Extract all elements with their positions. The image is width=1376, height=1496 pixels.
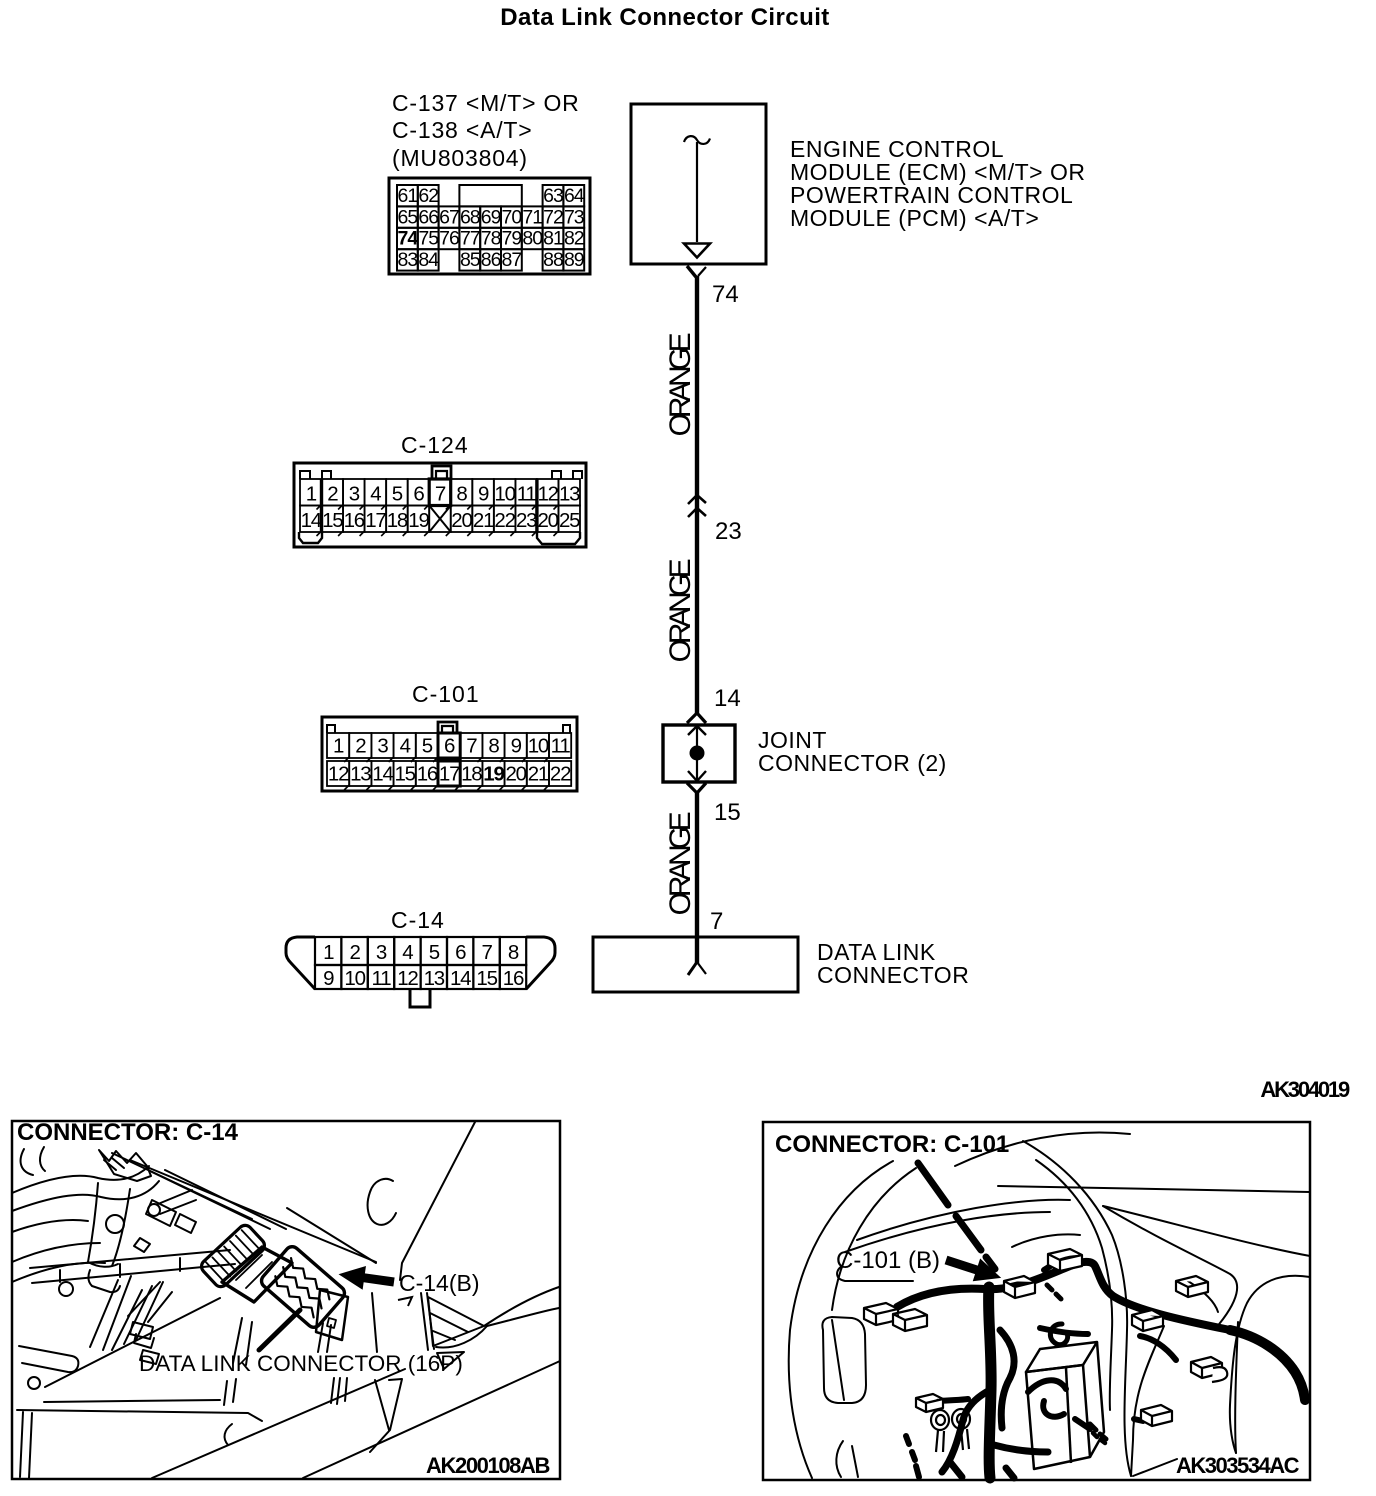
svg-text:Data Link Connector Circuit: Data Link Connector Circuit	[500, 4, 830, 31]
svg-text:ORANGE: ORANGE	[664, 559, 697, 662]
svg-text:4: 4	[370, 483, 381, 506]
svg-text:15: 15	[322, 509, 343, 532]
svg-text:78: 78	[481, 228, 501, 250]
svg-text:10: 10	[528, 735, 549, 758]
svg-text:85: 85	[460, 249, 481, 271]
svg-text:3: 3	[349, 483, 360, 506]
svg-text:AK200108AB: AK200108AB	[426, 1453, 549, 1478]
svg-text:69: 69	[481, 206, 501, 228]
svg-text:7: 7	[481, 941, 492, 964]
svg-text:C-124: C-124	[401, 432, 469, 458]
svg-text:86: 86	[481, 249, 501, 271]
svg-text:5: 5	[422, 735, 433, 758]
svg-text:3: 3	[376, 941, 387, 964]
svg-text:67: 67	[439, 206, 459, 228]
svg-text:63: 63	[543, 185, 563, 207]
svg-text:83: 83	[398, 249, 418, 271]
svg-text:11: 11	[372, 967, 392, 990]
svg-text:13: 13	[350, 763, 371, 786]
svg-text:18: 18	[387, 509, 408, 532]
svg-text:4: 4	[400, 735, 411, 758]
svg-text:74: 74	[398, 228, 419, 250]
svg-text:19: 19	[483, 763, 504, 786]
svg-text:ORANGE: ORANGE	[664, 812, 697, 915]
svg-text:71: 71	[522, 206, 542, 228]
svg-text:13: 13	[424, 967, 445, 990]
svg-text:80: 80	[522, 228, 543, 250]
svg-text:9: 9	[478, 483, 489, 506]
svg-text:3: 3	[377, 735, 388, 758]
svg-text:22: 22	[550, 763, 571, 786]
svg-text:CONNECTOR (2): CONNECTOR (2)	[758, 750, 947, 776]
svg-text:18: 18	[461, 763, 482, 786]
svg-text:13: 13	[559, 483, 580, 506]
svg-text:5: 5	[429, 941, 440, 964]
svg-text:11: 11	[551, 735, 571, 758]
svg-text:1: 1	[323, 941, 334, 964]
svg-text:61: 61	[398, 185, 418, 207]
svg-text:11: 11	[517, 483, 537, 506]
svg-text:17: 17	[439, 763, 460, 786]
svg-text:20: 20	[537, 509, 558, 532]
svg-text:64: 64	[564, 185, 585, 207]
svg-text:2: 2	[327, 483, 338, 506]
svg-text:CONNECTOR: CONNECTOR	[817, 962, 969, 988]
svg-text:73: 73	[564, 206, 584, 228]
svg-text:15: 15	[714, 799, 741, 826]
svg-text:25: 25	[559, 509, 580, 532]
svg-text:12: 12	[397, 967, 418, 990]
svg-text:87: 87	[502, 249, 522, 271]
svg-text:21: 21	[473, 509, 494, 532]
svg-text:7: 7	[710, 908, 723, 935]
svg-text:17: 17	[365, 509, 386, 532]
svg-text:AK303534AC: AK303534AC	[1176, 1453, 1300, 1478]
svg-text:20: 20	[505, 763, 526, 786]
svg-text:MODULE (PCM) <A/T>: MODULE (PCM) <A/T>	[790, 205, 1039, 231]
svg-text:15: 15	[394, 763, 415, 786]
svg-text:C-14(B): C-14(B)	[399, 1270, 480, 1296]
svg-text:89: 89	[564, 249, 584, 271]
svg-text:16: 16	[417, 763, 438, 786]
svg-text:88: 88	[543, 249, 563, 271]
svg-text:8: 8	[508, 941, 519, 964]
svg-text:AK304019: AK304019	[1260, 1077, 1350, 1102]
svg-text:82: 82	[564, 228, 584, 250]
svg-text:81: 81	[543, 228, 563, 250]
svg-text:16: 16	[503, 967, 524, 990]
svg-text:21: 21	[528, 763, 549, 786]
svg-text:72: 72	[543, 206, 563, 228]
svg-text:66: 66	[418, 206, 438, 228]
svg-text:C-101 (B): C-101 (B)	[836, 1247, 940, 1274]
svg-text:20: 20	[451, 509, 472, 532]
svg-text:70: 70	[502, 206, 523, 228]
svg-text:ORANGE: ORANGE	[664, 333, 697, 436]
svg-text:2: 2	[355, 735, 366, 758]
svg-text:14: 14	[372, 763, 393, 786]
svg-text:6: 6	[455, 941, 466, 964]
svg-text:2: 2	[349, 941, 360, 964]
svg-text:19: 19	[408, 509, 429, 532]
svg-text:14: 14	[450, 967, 471, 990]
svg-text:10: 10	[344, 967, 365, 990]
svg-text:65: 65	[398, 206, 419, 228]
svg-text:23: 23	[715, 518, 742, 545]
svg-text:8: 8	[456, 483, 467, 506]
svg-text:1: 1	[306, 483, 317, 506]
svg-text:CONNECTOR: C-101: CONNECTOR: C-101	[775, 1131, 1009, 1158]
svg-text:75: 75	[418, 228, 439, 250]
svg-text:CONNECTOR: C-14: CONNECTOR: C-14	[17, 1119, 239, 1146]
svg-text:14: 14	[714, 685, 741, 712]
svg-text:12: 12	[328, 763, 349, 786]
svg-text:6: 6	[444, 735, 455, 758]
svg-text:7: 7	[466, 735, 477, 758]
svg-text:C-137 <M/T> OR: C-137 <M/T> OR	[392, 90, 580, 116]
svg-text:84: 84	[418, 249, 439, 271]
svg-text:68: 68	[460, 206, 480, 228]
svg-text:79: 79	[502, 228, 522, 250]
svg-text:10: 10	[494, 483, 515, 506]
svg-text:C-138 <A/T>: C-138 <A/T>	[392, 117, 532, 143]
svg-text:9: 9	[511, 735, 522, 758]
svg-text:9: 9	[323, 967, 334, 990]
svg-text:7: 7	[435, 483, 446, 506]
svg-text:(MU803804): (MU803804)	[392, 145, 528, 171]
svg-text:8: 8	[488, 735, 499, 758]
svg-text:12: 12	[537, 483, 558, 506]
svg-text:62: 62	[418, 185, 438, 207]
svg-text:DATA LINK CONNECTOR (16P): DATA LINK CONNECTOR (16P)	[139, 1351, 463, 1376]
svg-text:74: 74	[712, 281, 739, 308]
svg-text:C-14: C-14	[391, 907, 445, 933]
svg-text:1: 1	[333, 735, 344, 758]
svg-text:22: 22	[494, 509, 515, 532]
svg-text:77: 77	[460, 228, 480, 250]
svg-text:14: 14	[301, 509, 322, 532]
svg-text:4: 4	[402, 941, 413, 964]
svg-text:23: 23	[516, 509, 537, 532]
svg-text:76: 76	[439, 228, 459, 250]
svg-text:5: 5	[392, 483, 403, 506]
svg-text:6: 6	[413, 483, 424, 506]
svg-text:15: 15	[476, 967, 497, 990]
svg-text:C-101: C-101	[412, 681, 480, 707]
svg-text:16: 16	[344, 509, 365, 532]
